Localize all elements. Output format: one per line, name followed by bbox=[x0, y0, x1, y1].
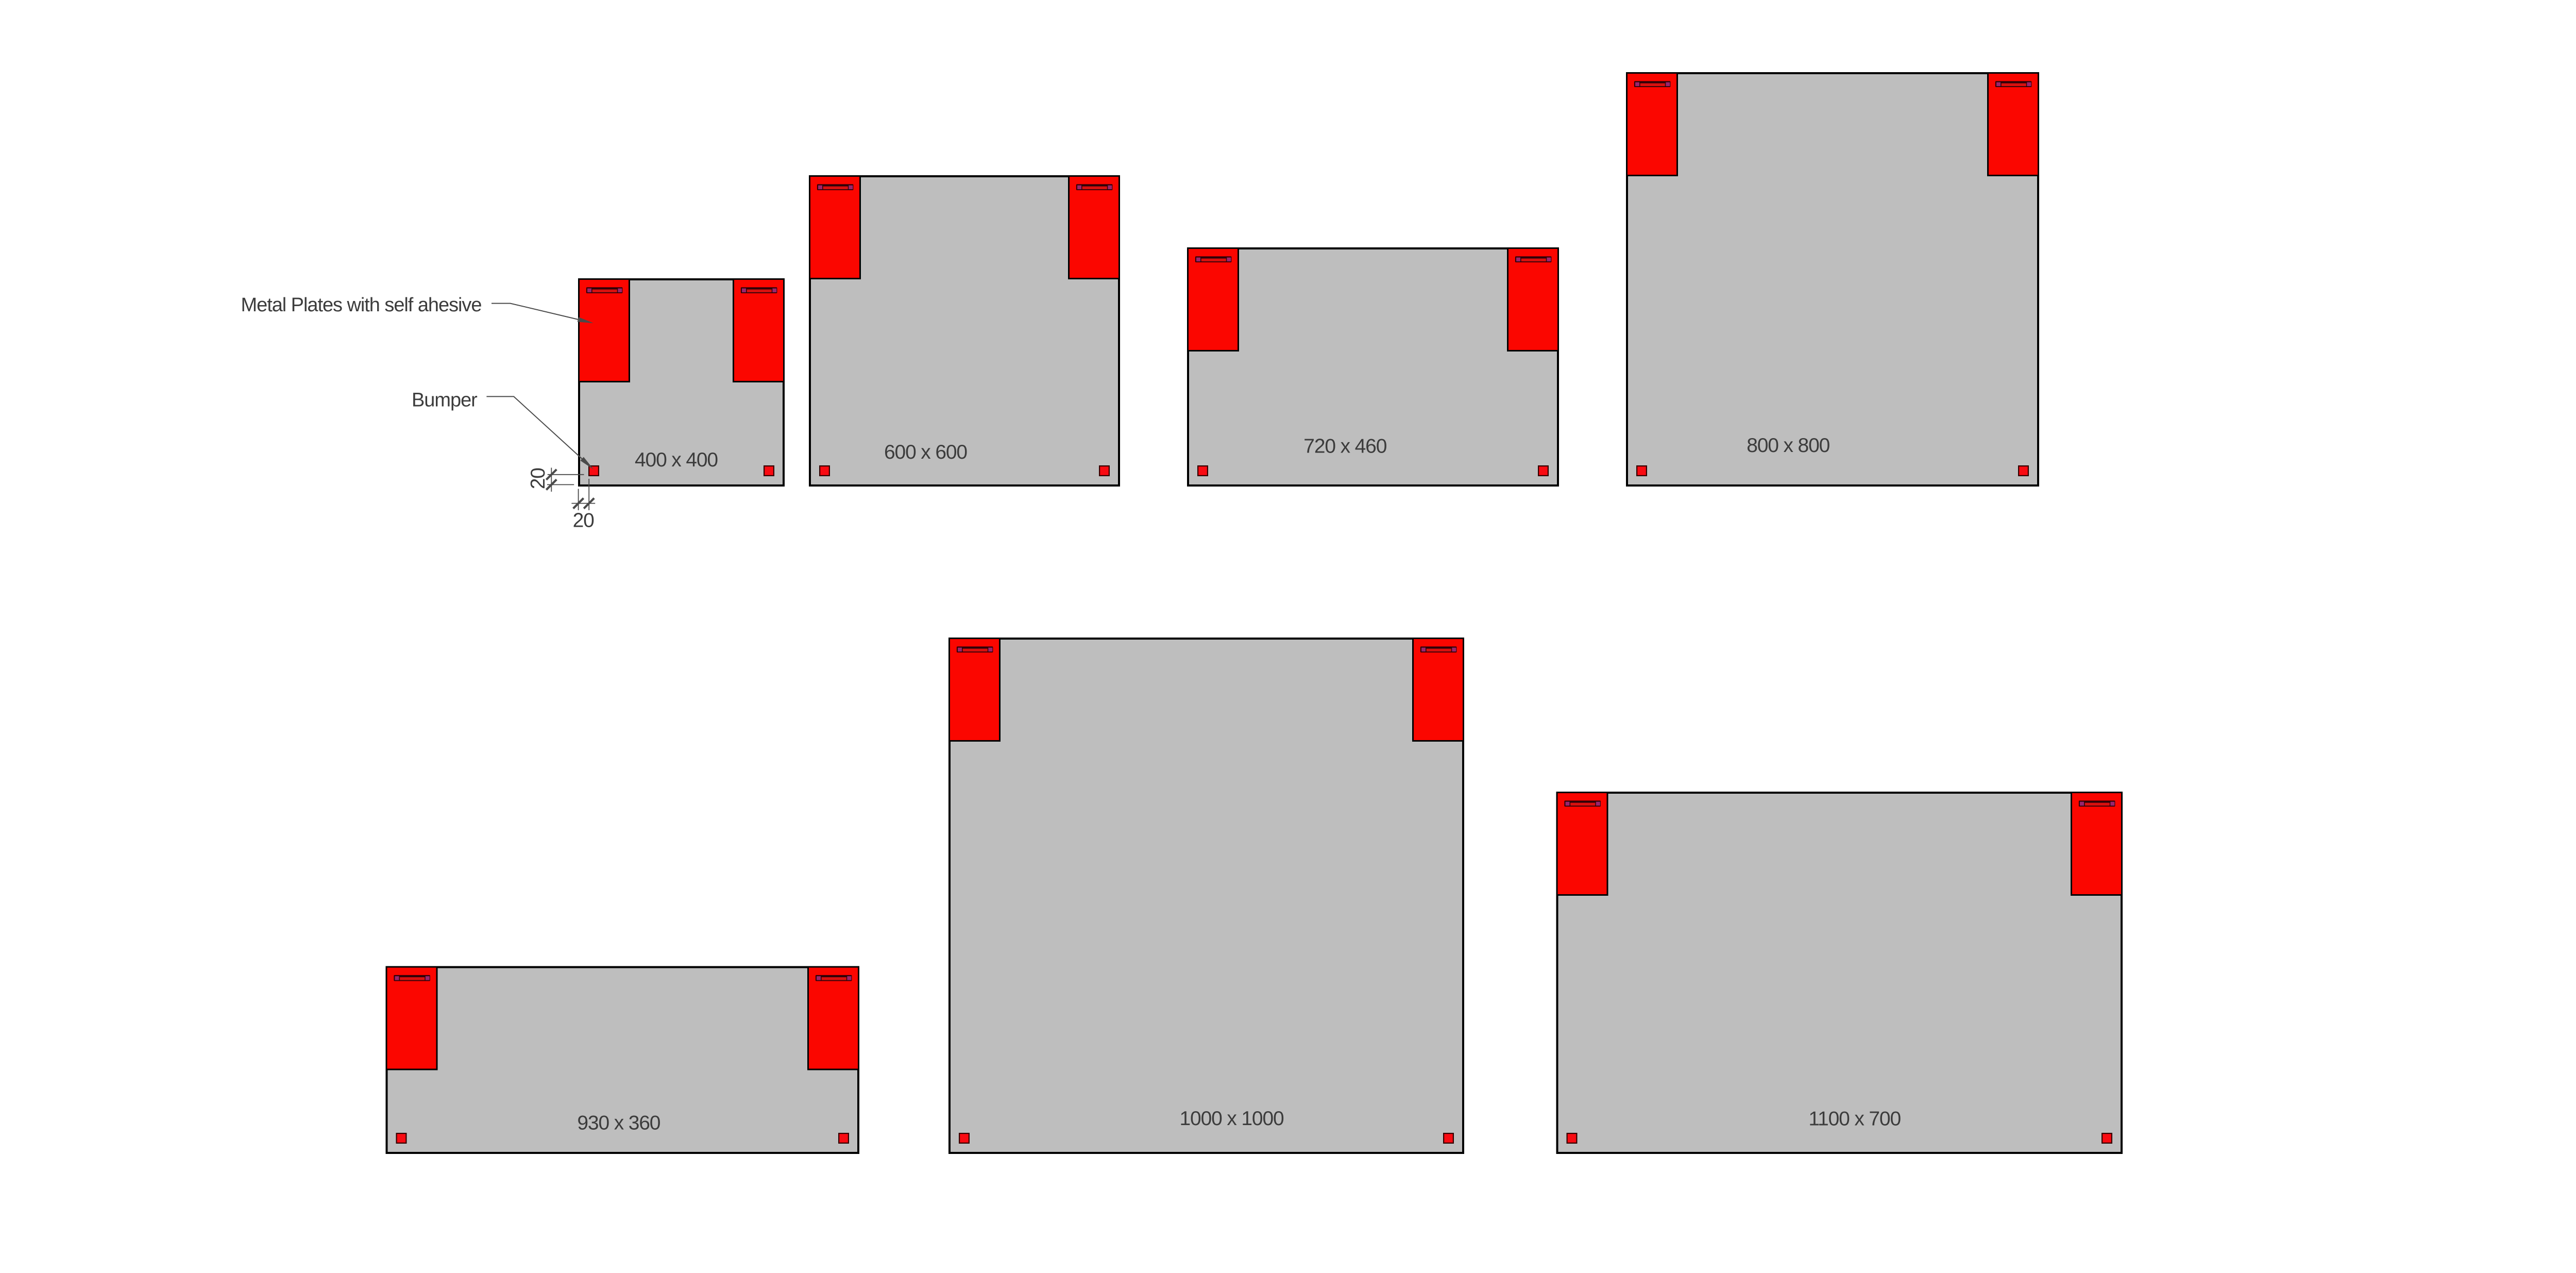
svg-text:20: 20 bbox=[573, 510, 595, 532]
svg-text:Metal Plates with self ahesive: Metal Plates with self ahesive bbox=[241, 294, 482, 316]
svg-text:720 x 460: 720 x 460 bbox=[1303, 435, 1386, 458]
svg-text:930 x 360: 930 x 360 bbox=[577, 1112, 660, 1134]
svg-text:1100 x 700: 1100 x 700 bbox=[1808, 1108, 1901, 1130]
svg-text:400 x 400: 400 x 400 bbox=[635, 449, 718, 471]
svg-text:20: 20 bbox=[527, 468, 549, 490]
svg-text:Bumper: Bumper bbox=[412, 390, 478, 411]
svg-text:800 x 800: 800 x 800 bbox=[1747, 434, 1829, 457]
svg-text:1000 x 1000: 1000 x 1000 bbox=[1180, 1108, 1284, 1130]
svg-text:600 x 600: 600 x 600 bbox=[884, 441, 967, 463]
